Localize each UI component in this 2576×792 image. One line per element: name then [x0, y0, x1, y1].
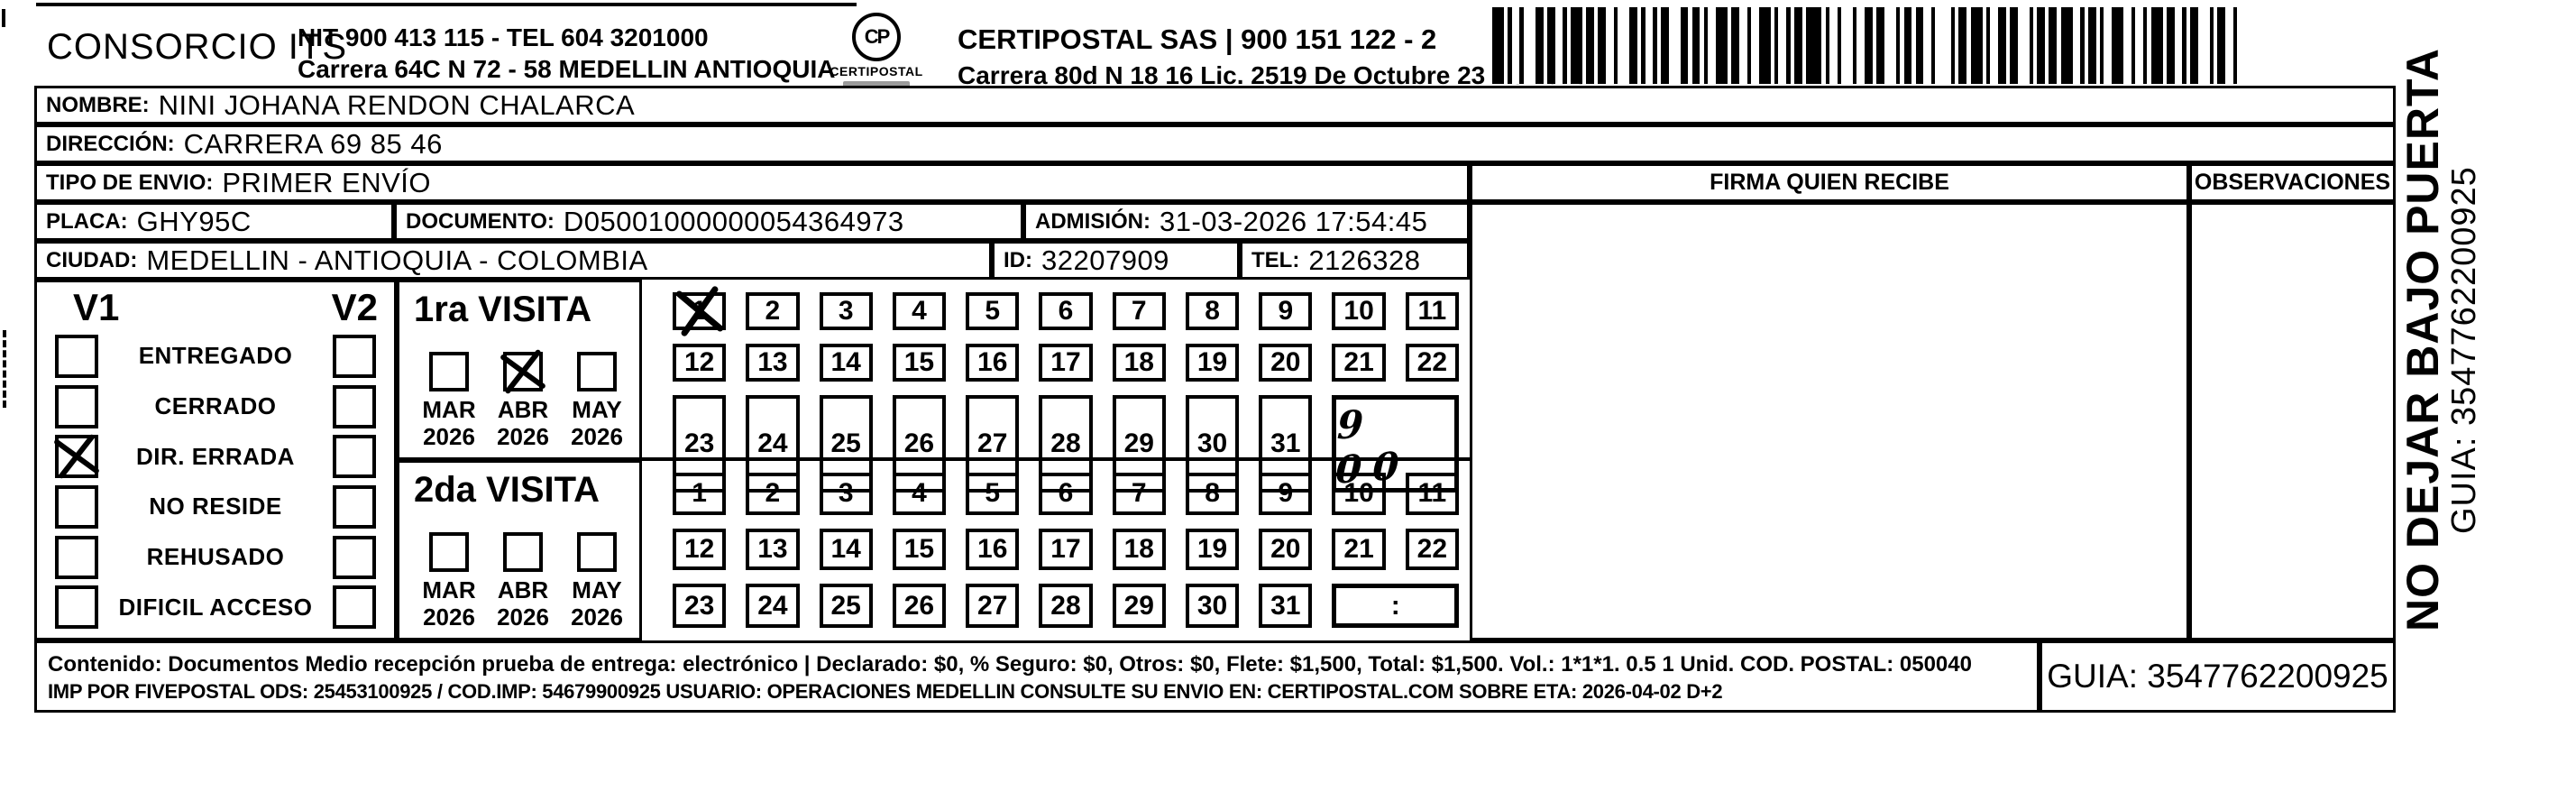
sender-address: Carrera 64C N 72 - 58 MEDELLIN ANTIOQUIA [298, 53, 835, 85]
barcode-space [2135, 7, 2143, 84]
placa-label: PLACA: [46, 209, 128, 235]
visita2-day-17[interactable]: 17 [1039, 529, 1092, 571]
barcode-bar [1661, 7, 1669, 84]
barcode-bar [1759, 7, 1771, 84]
visita2-day-21[interactable]: 21 [1332, 529, 1385, 571]
visita2-day-23[interactable]: 23 [673, 584, 726, 628]
barcode-space [1555, 7, 1563, 84]
visita1-day-number: 14 [830, 347, 860, 378]
barcode-space [2104, 7, 2112, 84]
visita2-day-number: 13 [757, 534, 787, 565]
barcode-space [1990, 7, 1998, 84]
visita2-day-number: 21 [1343, 534, 1373, 565]
ciudad-cell: CIUDAD: MEDELLIN - ANTIOQUIA - COLOMBIA [34, 241, 992, 280]
nombre-label: NOMBRE: [46, 93, 150, 118]
barcode-bar [1586, 7, 1594, 84]
barcode-space [1618, 7, 1629, 84]
visita1-day-number: 27 [977, 428, 1007, 459]
visita1-day-8[interactable]: 8 [1186, 292, 1239, 330]
visita1-day-number: 12 [684, 347, 714, 378]
status-label-entregado: ENTREGADO [98, 342, 333, 370]
guia-number-box: GUIA: 3547762200925 [2040, 640, 2396, 713]
sender-nit-tel: NIT 900 413 115 - TEL 604 3201000 [298, 22, 835, 53]
visita1-months: MAR2026ABR2026MAY2026 [412, 352, 634, 450]
barcode-space [1708, 7, 1716, 84]
v2-checkbox-entregado[interactable] [333, 335, 376, 378]
visita2-day-31[interactable]: 31 [1259, 584, 1312, 628]
visita2-day-10[interactable]: 10 [1332, 473, 1385, 515]
certipostal-logo: CP CERTIPOSTAL [822, 13, 930, 87]
visita2-day-18[interactable]: 18 [1113, 529, 1166, 571]
visita2-day-number: 27 [977, 591, 1007, 622]
visita1-day-number: 20 [1270, 347, 1300, 378]
visita1-day-13[interactable]: 13 [746, 344, 799, 382]
barcode-bar [2049, 7, 2057, 84]
visita2-day-19[interactable]: 19 [1186, 529, 1239, 571]
visita1-month-label: ABR [486, 396, 560, 423]
visita2-month-col-abr: ABR2026 [486, 532, 560, 631]
visita2-day-number: 4 [912, 478, 927, 509]
visita2-day-8[interactable]: 8 [1186, 473, 1239, 515]
visita2-month-year: 2026 [486, 603, 560, 631]
tel-cell: TEL: 2126328 [1240, 241, 1470, 280]
barcode-bar [1492, 7, 1504, 84]
visita1-day-number: 3 [839, 296, 854, 327]
barcode-bar [2167, 7, 2175, 84]
barcode-bar [2190, 7, 2198, 84]
shipment-details-box: Contenido: Documentos Medio recepción pr… [34, 640, 2040, 713]
visita1-day-number: 26 [904, 428, 934, 459]
barcode-bar [1998, 7, 2006, 84]
visita1-title: 1ra VISITA [399, 282, 639, 330]
visita2-day-25[interactable]: 25 [820, 584, 873, 628]
visita2-day-number: 7 [1132, 478, 1147, 509]
visita1-day-number: 8 [1205, 296, 1220, 327]
v1-checkbox-dir-errada[interactable] [55, 435, 98, 478]
visita1-day-9[interactable]: 9 [1259, 292, 1312, 330]
visita2-month-checkbox-may[interactable] [577, 532, 617, 572]
visita2-day-7[interactable]: 7 [1113, 473, 1166, 515]
direccion-label: DIRECCIÓN: [46, 132, 175, 157]
visita1-day-number: 1 [692, 296, 707, 327]
barcode-space [1669, 7, 1681, 84]
visita1-day-17[interactable]: 17 [1039, 344, 1092, 382]
sender-company-info: NIT 900 413 115 - TEL 604 3201000 Carrer… [298, 22, 835, 85]
barcode-bar [1916, 7, 1924, 84]
visita2-day-number: 29 [1124, 591, 1154, 622]
v2-checkbox-dir-errada[interactable] [333, 435, 376, 478]
visita2-month-label: MAR [412, 576, 486, 603]
visita1-day-1[interactable]: 1 [673, 292, 726, 330]
visita2-day-13[interactable]: 13 [746, 529, 799, 571]
barcode-bar [1598, 7, 1606, 84]
barcode-space [1512, 7, 1520, 84]
status-row-dificil-acceso: DIFICIL ACCESO [37, 582, 394, 632]
visita1-day-number: 15 [904, 347, 934, 378]
visita1-month-year: 2026 [560, 423, 634, 450]
v1-checkbox-no-reside[interactable] [55, 485, 98, 529]
id-value: 32207909 [1041, 244, 1169, 277]
visita1-day-number: 24 [757, 428, 787, 459]
barcode-bar [2217, 7, 2225, 84]
visita2-day-number: 25 [830, 591, 860, 622]
certipostal-logo-icon: CP [852, 13, 901, 61]
barcode-space [1923, 7, 1931, 84]
observaciones-area[interactable] [2189, 202, 2396, 640]
visita1-day-10[interactable]: 10 [1332, 292, 1385, 330]
barcode-bar [2061, 7, 2073, 84]
admision-cell: ADMISIÓN: 31-03-2026 17:54:45 [1023, 202, 1470, 241]
v2-column-header: V2 [332, 286, 378, 329]
visita2-panel: 2da VISITA MAR2026ABR2026MAY2026 [397, 460, 642, 640]
visita2-day-6[interactable]: 6 [1039, 473, 1092, 515]
status-row-rehusado: REHUSADO [37, 532, 394, 583]
visita1-day-number: 17 [1050, 347, 1080, 378]
visita1-day-number: 30 [1197, 428, 1227, 459]
visita1-day-3[interactable]: 3 [820, 292, 873, 330]
visita2-day-number: 28 [1050, 591, 1080, 622]
visita1-day-14[interactable]: 14 [820, 344, 873, 382]
visita1-day-number: 4 [912, 296, 927, 327]
visita1-day-number: 22 [1417, 347, 1447, 378]
visita2-day-number: 10 [1343, 478, 1373, 509]
barcode-bar [1681, 7, 1689, 84]
visita2-month-year: 2026 [412, 603, 486, 631]
visita1-month-label: MAR [412, 396, 486, 423]
visita2-month-checkbox-mar[interactable] [429, 532, 469, 572]
visita1-day-22[interactable]: 22 [1406, 344, 1459, 382]
scan-artifact-tick [2, 9, 5, 27]
visita1-day-20[interactable]: 20 [1259, 344, 1312, 382]
visita1-month-checkbox-may[interactable] [577, 352, 617, 391]
visita2-day-number: 12 [684, 534, 714, 565]
visita1-day-number: 16 [977, 347, 1007, 378]
documento-value: D05001000000054364973 [564, 206, 904, 238]
visita2-day-number: 22 [1417, 534, 1447, 565]
label-table: NOMBRE: NINI JOHANA RENDON CHALARCA DIRE… [34, 86, 2396, 713]
barcode-bar [1571, 7, 1582, 84]
status-rows: ENTREGADOCERRADODIR. ERRADANO RESIDEREHU… [37, 331, 394, 632]
visita1-day-2[interactable]: 2 [746, 292, 799, 330]
barcode-space [1829, 7, 1838, 84]
visita2-day-15[interactable]: 15 [893, 529, 946, 571]
status-row-no-reside: NO RESIDE [37, 482, 394, 532]
barcode-bar [2010, 7, 2018, 84]
visita2-day-number: 16 [977, 534, 1007, 565]
barcode-bar [2112, 7, 2123, 84]
admision-value: 31-03-2026 17:54:45 [1160, 206, 1427, 238]
visita1-month-year: 2026 [486, 423, 560, 450]
barcode-space [1739, 7, 1747, 84]
status-row-dir-errada: DIR. ERRADA [37, 431, 394, 482]
barcode-bar [1731, 7, 1739, 84]
visita1-month-checkbox-mar[interactable] [429, 352, 469, 391]
barcode-space [1856, 7, 1865, 84]
tipo-envio-value: PRIMER ENVÍO [222, 167, 431, 199]
visita2-day-number: 15 [904, 534, 934, 565]
visita1-day-16[interactable]: 16 [966, 344, 1019, 382]
shipment-details-line1: Contenido: Documentos Medio recepción pr… [48, 650, 2026, 678]
barcode-space [2175, 7, 2183, 84]
v2-checkbox-dificil-acceso[interactable] [333, 585, 376, 629]
side-warning-text: NO DEJAR BAJO PUERTA [2397, 97, 2449, 631]
visita2-day-number: 18 [1124, 534, 1154, 565]
visita2-time-box[interactable]: : [1332, 584, 1459, 628]
visita2-day-number: 24 [757, 591, 787, 622]
visita2-day-14[interactable]: 14 [820, 529, 873, 571]
visita2-day-number: 19 [1197, 534, 1227, 565]
barcode-bar [1547, 7, 1555, 84]
visita2-day-number: 6 [1059, 478, 1074, 509]
barcode-space [2123, 7, 2131, 84]
status-label-dir-errada: DIR. ERRADA [98, 443, 333, 471]
visita2-day-number: 30 [1197, 591, 1227, 622]
documento-label: DOCUMENTO: [406, 209, 555, 235]
barcode-bar [1876, 7, 1884, 84]
visita2-day-number: 9 [1278, 478, 1293, 509]
barcode-space [1841, 7, 1853, 84]
barcode-space [1524, 7, 1536, 84]
nombre-row: NOMBRE: NINI JOHANA RENDON CHALARCA [34, 86, 2396, 124]
visita2-months: MAR2026ABR2026MAY2026 [412, 532, 634, 631]
nombre-value: NINI JOHANA RENDON CHALARCA [159, 89, 636, 122]
visita2-day-20[interactable]: 20 [1259, 529, 1312, 571]
barcode-bar [1794, 7, 1802, 84]
certipostal-logo-label: CERTIPOSTAL [822, 64, 930, 78]
status-label-no-reside: NO RESIDE [98, 493, 333, 520]
ciudad-label: CIUDAD: [46, 248, 137, 273]
barcode-space [1606, 7, 1614, 84]
visita2-day-number: 26 [904, 591, 934, 622]
visita1-day-number: 19 [1197, 347, 1227, 378]
visita2-day-number: 3 [839, 478, 854, 509]
placa-value: GHY95C [137, 206, 252, 238]
visita1-day-number: 13 [757, 347, 787, 378]
visita1-day-21[interactable]: 21 [1332, 344, 1385, 382]
barcode-bar [1806, 7, 1821, 84]
firma-column-header: FIRMA QUIEN RECIBE [1470, 163, 2189, 202]
status-label-cerrado: CERRADO [98, 392, 333, 420]
visita2-day-number: 23 [684, 591, 714, 622]
visita1-day-number: 31 [1270, 428, 1300, 459]
barcode-space [2237, 7, 2245, 84]
visita2-day-number: 14 [830, 534, 860, 565]
barcode-bar [1629, 7, 1637, 84]
visita1-month-label: MAY [560, 396, 634, 423]
direccion-value: CARRERA 69 85 46 [184, 128, 443, 161]
visita1-day-12[interactable]: 12 [673, 344, 726, 382]
visita1-day-6[interactable]: 6 [1039, 292, 1092, 330]
visita2-day-number: 11 [1418, 478, 1447, 509]
barcode-bar [1958, 7, 1966, 84]
visita1-day-number: 28 [1050, 428, 1080, 459]
visita1-day-number: 25 [830, 428, 860, 459]
visita1-day-number: 21 [1343, 347, 1373, 378]
visita2-day-number: 2 [765, 478, 781, 509]
visita1-day-number: 11 [1418, 296, 1447, 327]
visita2-day-27[interactable]: 27 [966, 584, 1019, 628]
visita2-day-number: 20 [1270, 534, 1300, 565]
v2-checkbox-no-reside[interactable] [333, 485, 376, 529]
visita1-month-checkbox-abr[interactable] [503, 352, 543, 391]
visita1-day-7[interactable]: 7 [1113, 292, 1166, 330]
visita1-day-15[interactable]: 15 [893, 344, 946, 382]
visita1-day-number: 10 [1343, 296, 1373, 327]
status-label-rehusado: REHUSADO [98, 543, 333, 571]
visita1-day-18[interactable]: 18 [1113, 344, 1166, 382]
barcode-space [2198, 7, 2210, 84]
visita1-month-year: 2026 [412, 423, 486, 450]
visita2-day-11[interactable]: 11 [1406, 473, 1459, 515]
visita1-day-number: 18 [1124, 347, 1154, 378]
visita2-day-30[interactable]: 30 [1186, 584, 1239, 628]
visita2-day-2[interactable]: 2 [746, 473, 799, 515]
side-guia-text: GUIA: 3547762200925 [2445, 155, 2484, 534]
visita1-day-number: 2 [765, 296, 781, 327]
visita2-time-value: : [1391, 591, 1400, 622]
tel-value: 2126328 [1308, 244, 1420, 277]
visita2-day-5[interactable]: 5 [966, 473, 1019, 515]
barcode-bar [1692, 7, 1701, 84]
status-row-entregado: ENTREGADO [37, 331, 394, 382]
visita2-day-12[interactable]: 12 [673, 529, 726, 571]
visita2-day-28[interactable]: 28 [1039, 584, 1092, 628]
barcode-space [2225, 7, 2233, 84]
visita2-day-grid: 1234567891011121314151617181920212223242… [642, 460, 1470, 640]
visita2-month-label: ABR [486, 576, 560, 603]
barcode-space [1646, 7, 1654, 84]
barcode-bar [1904, 7, 1912, 84]
shipping-label-scan: { "header": { "company": "CONSORCIO ITS"… [0, 0, 2576, 792]
barcode-bar [1716, 7, 1728, 84]
shipment-details-line2: IMP POR FIVEPOSTAL ODS: 25453100925 / CO… [48, 678, 2026, 705]
tipo-envio-label: TIPO DE ENVIO: [46, 170, 213, 196]
visita2-day-4[interactable]: 4 [893, 473, 946, 515]
barcode-space [1778, 7, 1786, 84]
tracking-barcode [1492, 7, 2245, 84]
visita1-day-11[interactable]: 11 [1406, 292, 1459, 330]
visita2-day-29[interactable]: 29 [1113, 584, 1166, 628]
visita2-day-number: 8 [1205, 478, 1220, 509]
id-cell: ID: 32207909 [992, 241, 1240, 280]
visita2-month-col-mar: MAR2026 [412, 532, 486, 631]
v2-checkbox-rehusado[interactable] [333, 536, 376, 579]
visita1-day-5[interactable]: 5 [966, 292, 1019, 330]
v2-checkbox-cerrado[interactable] [333, 385, 376, 428]
barcode-bar [2151, 7, 2163, 84]
visita1-day-number: 6 [1059, 296, 1074, 327]
tel-label: TEL: [1251, 248, 1299, 273]
visita2-day-3[interactable]: 3 [820, 473, 873, 515]
tipo-envio-row: TIPO DE ENVIO: PRIMER ENVÍO [34, 163, 1470, 202]
barcode-bar [1865, 7, 1873, 84]
visita1-day-number: 29 [1124, 428, 1154, 459]
barcode-space [1935, 7, 1950, 84]
visita1-day-grid: 1234567891011121314151617181920212223242… [642, 280, 1470, 460]
v1-column-header: V1 [73, 286, 119, 329]
barcode-space [2018, 7, 2030, 84]
firma-signature-area[interactable] [1470, 202, 2189, 640]
placa-cell: PLACA: GHY95C [34, 202, 394, 241]
visita2-title: 2da VISITA [399, 463, 639, 511]
visita2-month-label: MAY [560, 576, 634, 603]
barcode-space [1884, 7, 1896, 84]
status-panel: V1 V2 ENTREGADOCERRADODIR. ERRADANO RESI… [34, 280, 397, 640]
visita1-month-col-mar: MAR2026 [412, 352, 486, 450]
visita2-day-number: 17 [1050, 534, 1080, 565]
visita1-month-col-abr: ABR2026 [486, 352, 560, 450]
status-label-dificil-acceso: DIFICIL ACCESO [98, 594, 333, 622]
visita1-day-number: 23 [684, 428, 714, 459]
v1-checkbox-dificil-acceso[interactable] [55, 585, 98, 629]
ciudad-value: MEDELLIN - ANTIOQUIA - COLOMBIA [146, 244, 647, 277]
documento-cell: DOCUMENTO: D05001000000054364973 [394, 202, 1023, 241]
barcode-bar [2088, 7, 2096, 84]
barcode-space [2073, 7, 2081, 84]
v1-checkbox-entregado[interactable] [55, 335, 98, 378]
visita1-panel: 1ra VISITA MAR2026ABR2026MAY2026 [397, 280, 642, 460]
visita1-day-4[interactable]: 4 [893, 292, 946, 330]
visita1-day-19[interactable]: 19 [1186, 344, 1239, 382]
scan-artifact-line [36, 3, 857, 6]
visita2-day-16[interactable]: 16 [966, 529, 1019, 571]
visita2-month-year: 2026 [560, 603, 634, 631]
visita1-day-number: 9 [1278, 296, 1293, 327]
visita2-day-24[interactable]: 24 [746, 584, 799, 628]
id-label: ID: [1004, 248, 1032, 273]
visita2-day-1[interactable]: 1 [673, 473, 726, 515]
visita2-day-number: 1 [692, 478, 707, 509]
visita1-day-number: 7 [1132, 296, 1147, 327]
v1-checkbox-cerrado[interactable] [55, 385, 98, 428]
direccion-row: DIRECCIÓN: CARRERA 69 85 46 [34, 124, 2396, 163]
barcode-bar [1536, 7, 1544, 84]
barcode-bar [2037, 7, 2045, 84]
visita2-day-22[interactable]: 22 [1406, 529, 1459, 571]
visita2-day-number: 31 [1270, 591, 1300, 622]
observaciones-column-header: OBSERVACIONES [2189, 163, 2396, 202]
visita2-day-9[interactable]: 9 [1259, 473, 1312, 515]
v1-checkbox-rehusado[interactable] [55, 536, 98, 579]
visita2-day-26[interactable]: 26 [893, 584, 946, 628]
status-row-cerrado: CERRADO [37, 382, 394, 432]
barcode-space [1751, 7, 1759, 84]
barcode-bar [1971, 7, 1983, 84]
visita2-month-checkbox-abr[interactable] [503, 532, 543, 572]
visita1-day-number: 5 [985, 296, 1000, 327]
scan-artifact-dashes [3, 330, 6, 408]
visita2-day-number: 5 [985, 478, 1000, 509]
admision-label: ADMISIÓN: [1035, 209, 1150, 235]
visita1-month-col-may: MAY2026 [560, 352, 634, 450]
visita2-month-col-may: MAY2026 [560, 532, 634, 631]
